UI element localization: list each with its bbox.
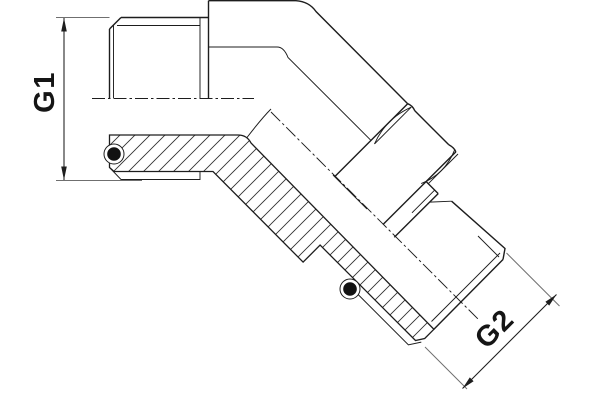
body-inner-edge bbox=[209, 47, 372, 140]
nut-corner-arc-far bbox=[449, 145, 456, 152]
stud2-thread-line bbox=[478, 236, 499, 257]
shoulder-face bbox=[335, 104, 408, 177]
nut-far-face bbox=[383, 152, 456, 225]
nut-chamfer-arc-far bbox=[421, 150, 454, 183]
g2-extension-lower bbox=[425, 347, 467, 389]
stud2-outer-edge bbox=[452, 201, 505, 259]
g1-arrow-up bbox=[61, 18, 67, 32]
bore-background-edge bbox=[333, 175, 367, 209]
g2-label: G2 bbox=[469, 303, 521, 355]
o-ring-seal-left bbox=[107, 147, 121, 161]
g1-arrow-down bbox=[61, 167, 67, 181]
g2-dimension-line bbox=[463, 295, 557, 389]
stud2-lead-chamfer bbox=[430, 201, 452, 202]
collar-face bbox=[394, 194, 438, 238]
shoulder-face-inner bbox=[375, 107, 412, 144]
nut-outer-flat bbox=[415, 111, 449, 145]
body-top-edge bbox=[209, 1, 408, 104]
elbow-fitting-drawing: G1 G2 bbox=[0, 0, 600, 400]
nut-far-face-inner bbox=[428, 154, 458, 184]
section-hatch-region bbox=[110, 135, 434, 341]
o-ring-seal-right bbox=[343, 282, 357, 296]
stud1-chamfer bbox=[110, 18, 122, 30]
collar-outer-edge bbox=[426, 182, 438, 194]
g1-label: G1 bbox=[29, 71, 61, 113]
bore-intersection-curve bbox=[247, 109, 271, 138]
dimension-g2: G2 bbox=[425, 253, 560, 389]
technical-drawing-canvas: G1 G2 bbox=[0, 0, 600, 400]
